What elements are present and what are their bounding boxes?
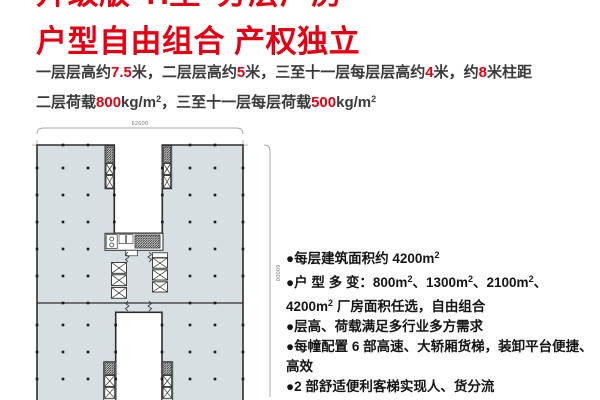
- feature-list: ●每层建筑面积约 4200m2●户 型 多 变：800m2、1300m2、210…: [286, 245, 594, 397]
- text-run: 米，约: [434, 64, 479, 81]
- highlight-number: 500: [311, 94, 336, 111]
- text-run: ●每幢配置 6 部高速、大轿厢货梯，装卸平台便捷、: [286, 339, 593, 354]
- text-run: 、2100m: [473, 275, 529, 290]
- feature-line: ●户 型 多 变：800m2、1300m2、2100m2、: [286, 269, 594, 293]
- spec-text-block: 一层层高约7.5米，二层层高约5米，三至十一层每层层高约4米，约8米柱距 二层荷…: [36, 60, 532, 116]
- spec-line-floor-heights: 一层层高约7.5米，二层层高约5米，三至十一层每层层高约4米，约8米柱距: [36, 60, 532, 86]
- text-run: 一层层高约: [36, 64, 111, 81]
- text-run: 、: [534, 275, 548, 290]
- feature-line: 高效: [286, 357, 594, 377]
- feature-item: ●2 部舒适便利客梯实现人、货分流: [286, 377, 594, 397]
- text-run: ，三至十一层每层荷载: [161, 94, 311, 111]
- text-run: 二层荷载: [36, 94, 96, 111]
- dimension-bracket-right: [264, 145, 270, 397]
- highlight-number: 800: [96, 94, 121, 111]
- highlight-number: 4: [425, 64, 433, 81]
- text-run: 、1300m: [412, 275, 468, 290]
- feature-line: 4200m2 厂房面积任选，自由组合: [286, 293, 594, 317]
- highlight-number: 7.5: [111, 64, 132, 81]
- text-run: ●户 型 多 变：800m: [286, 275, 407, 290]
- feature-item: ●每层建筑面积约 4200m2: [286, 245, 594, 269]
- feature-line: ●每幢配置 6 部高速、大轿厢货梯，装卸平台便捷、: [286, 337, 594, 357]
- headline-top-clipped: 升级版“H型”分层厂房: [36, 0, 343, 12]
- text-run: 4200m: [286, 299, 328, 314]
- text-run: kg/m: [336, 94, 371, 111]
- feature-line: ●2 部舒适便利客梯实现人、货分流: [286, 377, 594, 397]
- text-run: ●每层建筑面积约 4200m: [286, 251, 434, 266]
- feature-item: ●户 型 多 变：800m2、1300m2、2100m2、4200m2 厂房面积…: [286, 269, 594, 317]
- flyer-page: 升级版“H型”分层厂房 户型自由组合 产权独立 一层层高约7.5米，二层层高约5…: [0, 0, 600, 400]
- feature-item: ●层高、荷载满足多行业多方需求: [286, 317, 594, 337]
- highlight-number: 5: [237, 64, 245, 81]
- feature-item: ●每幢配置 6 部高速、大轿厢货梯，装卸平台便捷、高效: [286, 337, 594, 377]
- text-run: 高效: [286, 359, 313, 374]
- text-run: 厂房面积任选，自由组合: [333, 299, 485, 314]
- highlight-number: 8: [479, 64, 487, 81]
- feature-line: ●层高、荷载满足多行业多方需求: [286, 317, 594, 337]
- superscript: 2: [434, 250, 439, 260]
- building-outline: [37, 145, 243, 400]
- text-run: ●层高、荷载满足多行业多方需求: [286, 319, 483, 334]
- service-box: [153, 253, 168, 258]
- dimension-bracket-top: [37, 128, 243, 134]
- text-run: kg/m: [121, 94, 156, 111]
- plan-height-label: 60000: [274, 265, 280, 282]
- text-run: 米，二层层高约: [132, 64, 237, 81]
- superscript: 2: [371, 94, 376, 104]
- text-run: ●2 部舒适便利客梯实现人、货分流: [286, 379, 494, 394]
- headline-main: 户型自由组合 产权独立: [36, 24, 360, 60]
- spec-line-floor-loads: 二层荷载800kg/m2，三至十一层每层荷载500kg/m2: [36, 86, 532, 116]
- text-run: 米柱距: [487, 64, 532, 81]
- floor-plan-diagram: 62600 60000: [25, 115, 280, 400]
- text-run: 米，三至十一层每层层高约: [245, 64, 425, 81]
- feature-line: ●每层建筑面积约 4200m2: [286, 245, 594, 269]
- plan-width-label: 62600: [132, 121, 149, 127]
